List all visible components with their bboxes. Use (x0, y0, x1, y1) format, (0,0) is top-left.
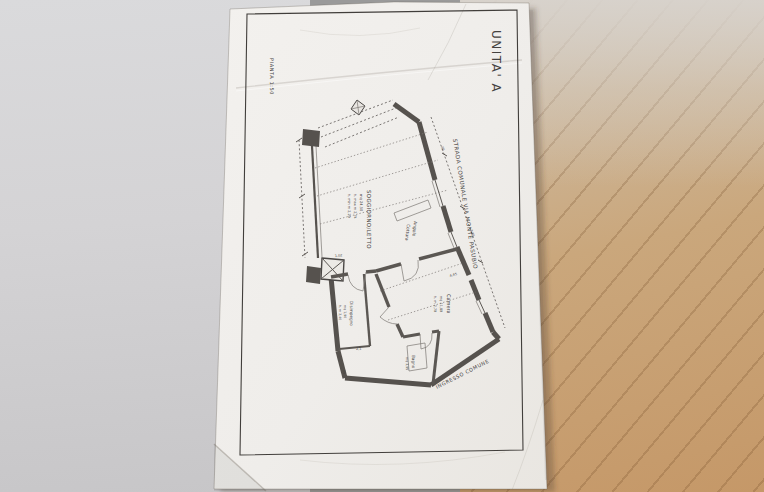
room-label-camera: Camera (446, 294, 452, 314)
room-label-soggiorno: SOGGIORNO/LETTO (366, 190, 372, 249)
plan-title: PIANTA 1:50 (269, 58, 275, 95)
room-sublabel-soggiorno-hmax: h. max m 2,74 (353, 194, 357, 219)
unit-title: UNITA' A (489, 30, 503, 93)
photo-of-floor-plan: PIANTA 1:50 UNITA' A (0, 0, 764, 492)
floor-plan-photo: PIANTA 1:50 UNITA' A (0, 0, 764, 492)
room-label-bagno: Bagno (411, 355, 416, 369)
room-sublabel-camera-height: h. m 2,70 (433, 296, 437, 312)
room-sublabel-soggiorno-hmin: h. min m 2,20 (347, 194, 351, 218)
dim-interior-wall: 1,02 (335, 253, 343, 258)
room-sublabel-camera-area: mq 11,80 (439, 296, 443, 312)
dim-hall-width: 2,1 (356, 347, 362, 351)
dim-step: 60 (342, 370, 346, 374)
room-sublabel-disimpegno-area: mq 1,90 (343, 305, 347, 318)
room-sublabel-soggiorno-area: mq 24,50 (359, 194, 363, 212)
room-sublabel-bagno-area: mq 3,95 (405, 357, 409, 370)
room-label-disimpegno: Disimpegno (349, 301, 354, 326)
room-sublabel-disimpegno-height: h. m 2,40 (338, 305, 342, 320)
